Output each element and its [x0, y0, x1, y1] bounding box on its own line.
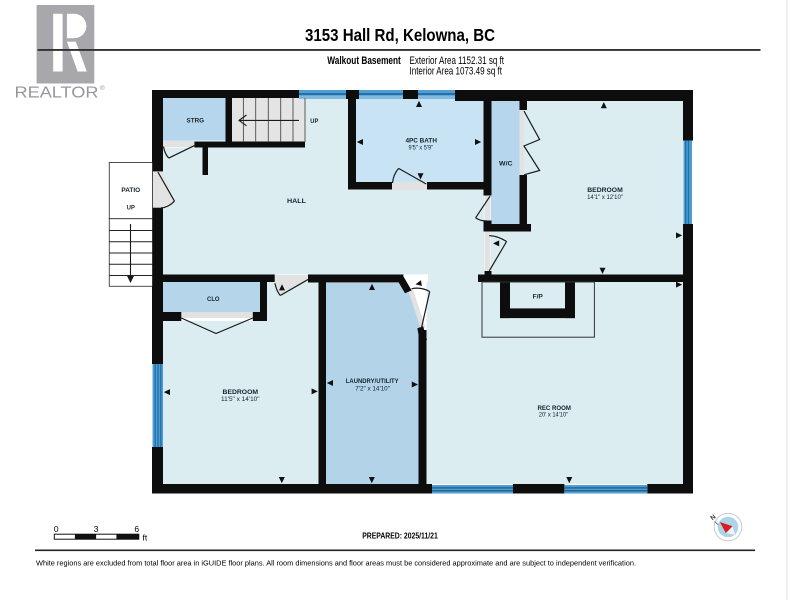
svg-text:UP: UP: [310, 118, 318, 125]
svg-text:20' x 14'10": 20' x 14'10": [539, 412, 569, 419]
svg-text:White regions are excluded fro: White regions are excluded from total fl…: [36, 558, 636, 567]
svg-text:®: ®: [100, 84, 105, 92]
svg-text:BEDROOM: BEDROOM: [223, 389, 259, 396]
svg-text:PATIO: PATIO: [121, 187, 140, 194]
svg-text:PREPARED: 2025/11/21: PREPARED: 2025/11/21: [362, 531, 438, 541]
svg-text:ft: ft: [143, 533, 148, 543]
svg-text:REALTOR: REALTOR: [15, 85, 99, 102]
svg-text:W/C: W/C: [499, 161, 513, 168]
svg-text:UP: UP: [127, 204, 136, 211]
svg-text:HALL: HALL: [287, 198, 306, 205]
svg-text:Walkout Basement: Walkout Basement: [327, 55, 401, 67]
svg-text:11'5" x 14'10": 11'5" x 14'10": [221, 396, 260, 403]
svg-text:0: 0: [54, 524, 59, 534]
svg-text:3153 Hall Rd, Kelowna, BC: 3153 Hall Rd, Kelowna, BC: [305, 25, 495, 45]
svg-text:CLO: CLO: [207, 296, 220, 303]
svg-text:Interior Area 1073.49 sq ft: Interior Area 1073.49 sq ft: [410, 65, 503, 77]
svg-text:BEDROOM: BEDROOM: [587, 187, 623, 194]
svg-text:9'5" x 5'9": 9'5" x 5'9": [408, 145, 433, 152]
svg-text:LAUNDRY/UTILITY: LAUNDRY/UTILITY: [346, 378, 399, 385]
svg-text:14'1" x 12'10": 14'1" x 12'10": [587, 194, 623, 201]
svg-text:7'2" x 14'10": 7'2" x 14'10": [355, 385, 390, 392]
svg-text:6: 6: [134, 524, 139, 534]
svg-text:STRG: STRG: [187, 118, 205, 125]
svg-text:F/P: F/P: [533, 294, 544, 301]
svg-text:3: 3: [94, 524, 99, 534]
svg-text:4PC BATH: 4PC BATH: [405, 138, 437, 145]
